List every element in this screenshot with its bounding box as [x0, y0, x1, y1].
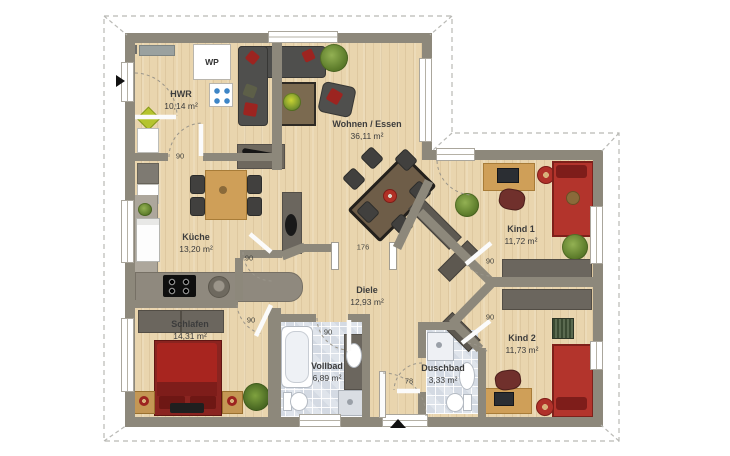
window-living-top: [268, 31, 338, 43]
entrance-door-leaf: [379, 371, 386, 418]
washing-machine: [137, 128, 159, 153]
sofa-pillow-red: [243, 102, 258, 117]
room-area: 6,89 m²: [311, 373, 343, 383]
utility-shelf: [139, 45, 175, 56]
room-area: 11,73 m²: [506, 345, 539, 355]
room-area: 14,31 m²: [171, 331, 209, 341]
wall-exterior-bottom: [125, 417, 603, 427]
nightstand-lamp: [227, 396, 237, 406]
kid2-radiator: [552, 318, 574, 339]
room-name: Diele: [350, 285, 384, 297]
room-label-kind2: Kind 2 11,73 m²: [506, 333, 539, 355]
door-width-hwr: 90: [176, 152, 184, 161]
fridge: [136, 218, 160, 262]
kitchen-chair: [247, 197, 262, 216]
room-label-schlafen: Schlafen 14,31 m²: [171, 319, 209, 341]
bath-sink: [346, 343, 362, 368]
kid1-terrace-plant: [455, 193, 479, 217]
coffee-table-plant: [283, 93, 301, 111]
nightstand-lamp: [139, 396, 149, 406]
kid1-bed-pillow: [556, 165, 587, 178]
door-width-vollbad: 90: [324, 328, 332, 337]
wall-vollbad-right: [362, 314, 370, 417]
room-area: 13,20 m²: [179, 244, 213, 254]
room-label-diele: Diele 12,93 m²: [350, 285, 384, 307]
toilet-bowl: [290, 392, 308, 411]
shower-drain-2: [436, 342, 442, 348]
room-name: HWR: [164, 89, 198, 101]
kitchen-sink: [208, 276, 230, 298]
terrace-door-kid1: [436, 148, 475, 161]
room-label-vollbad: Vollbad 6,89 m²: [311, 361, 343, 383]
room-label-kueche: Küche 13,20 m²: [179, 232, 213, 254]
wall-schlafen-top: [135, 300, 238, 308]
kid2-laptop: [494, 392, 514, 406]
room-name: Vollbad: [311, 361, 343, 373]
kitchen-table-decor: [219, 186, 227, 194]
living-plant: [320, 44, 348, 72]
shower-drain: [347, 399, 353, 405]
opening-stub-left: [331, 242, 339, 270]
wall-vollbad-top-b: [348, 314, 362, 322]
kid2-wardrobe: [502, 289, 592, 310]
bathtub-inner: [285, 331, 309, 383]
wall-vollbad-top-a: [281, 314, 316, 322]
door-width-duschbad: 78: [405, 377, 413, 386]
room-area: 3,33 m²: [421, 375, 465, 385]
room-name: Wohnen / Essen: [332, 119, 401, 131]
room-area: 12,93 m²: [350, 297, 384, 307]
room-area: 11,72 m²: [505, 236, 538, 246]
bedroom-plant: [243, 383, 270, 411]
window-vollbad-bottom: [299, 414, 341, 427]
door-width-kind1: 90: [486, 257, 494, 266]
wall-hwr-living: [272, 43, 282, 170]
kitchen-chair: [247, 175, 262, 194]
room-name: Kind 2: [506, 333, 539, 345]
kid1-wardrobe: [502, 259, 592, 278]
door-width-kind2: 90: [486, 313, 494, 322]
room-label-duschbad: Duschbad 3,33 m²: [421, 363, 465, 385]
wall-hwr-kueche-a: [135, 153, 168, 161]
floor-plan: HWR 10,14 m² Wohnen / Essen 36,11 m² Küc…: [0, 0, 730, 456]
wall-duschbad-top: [418, 322, 458, 330]
washer-connections-unit: [209, 83, 233, 107]
wall-duschbad-left-a: [418, 330, 426, 358]
door-width-schlafen: 90: [247, 316, 255, 325]
kitchen-plant: [138, 203, 152, 216]
island-sink-black: [285, 214, 297, 236]
cooktop: [163, 275, 196, 297]
window-kid2-east: [590, 341, 603, 370]
kid2-bed-pillow: [556, 397, 587, 410]
wall-duschbad-right: [478, 348, 486, 417]
wall-hwr-kueche-b: [203, 153, 282, 161]
door-width-kueche: 90: [245, 254, 253, 263]
room-name: Schlafen: [171, 319, 209, 331]
room-name: Küche: [179, 232, 213, 244]
kitchen-chair: [190, 197, 205, 216]
room-label-kind1: Kind 1 11,72 m²: [505, 224, 538, 246]
double-bed-fold: [157, 382, 217, 396]
toilet-tank-2: [463, 394, 472, 411]
wall-kids-spine: [488, 277, 593, 287]
room-label-hwr: HWR 10,14 m²: [164, 89, 198, 111]
side-entrance-marker: [116, 75, 125, 87]
room-area: 10,14 m²: [164, 101, 198, 111]
window-kitchen-left: [121, 200, 134, 263]
kid1-teddy: [566, 191, 580, 205]
room-label-wohnen-essen: Wohnen / Essen 36,11 m²: [332, 119, 401, 141]
terrace-sliding-door: [419, 58, 432, 142]
heat-pump-label: WP: [205, 57, 219, 67]
kid1-laptop: [497, 168, 519, 183]
utility-cabinet: [137, 163, 159, 184]
toilet-bowl-2: [446, 393, 464, 412]
room-name: Kind 1: [505, 224, 538, 236]
room-name: Duschbad: [421, 363, 465, 375]
dining-plate: [383, 189, 397, 203]
kid2-stool: [536, 398, 554, 416]
room-area: 36,11 m²: [332, 131, 401, 141]
kitchen-table: [205, 170, 247, 220]
wall-kueche-diele-v: [235, 258, 243, 300]
bed-bench: [170, 403, 204, 413]
window-kid1-east: [590, 206, 603, 264]
window-bedroom-left: [121, 318, 134, 392]
wall-exterior-east-wing: [593, 150, 603, 427]
opening-stub-right: [389, 242, 397, 270]
wall-schlafen-right: [268, 308, 281, 417]
main-entrance-marker: [390, 419, 406, 428]
kid1-plant: [562, 234, 588, 260]
kitchen-chair: [190, 175, 205, 194]
opening-width-living: 176: [357, 243, 370, 252]
